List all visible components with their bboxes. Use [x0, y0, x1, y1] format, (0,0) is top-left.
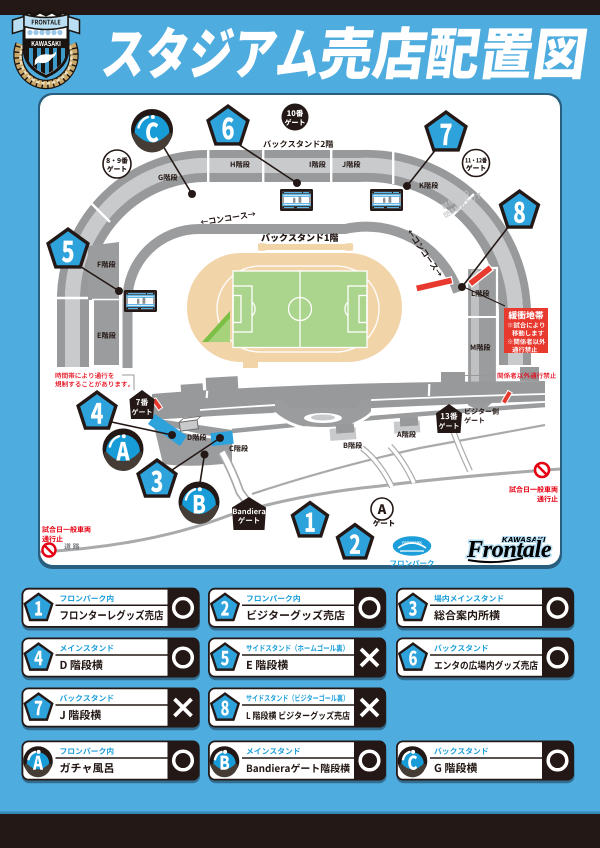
svg-text:Frontale: Frontale	[466, 537, 552, 563]
